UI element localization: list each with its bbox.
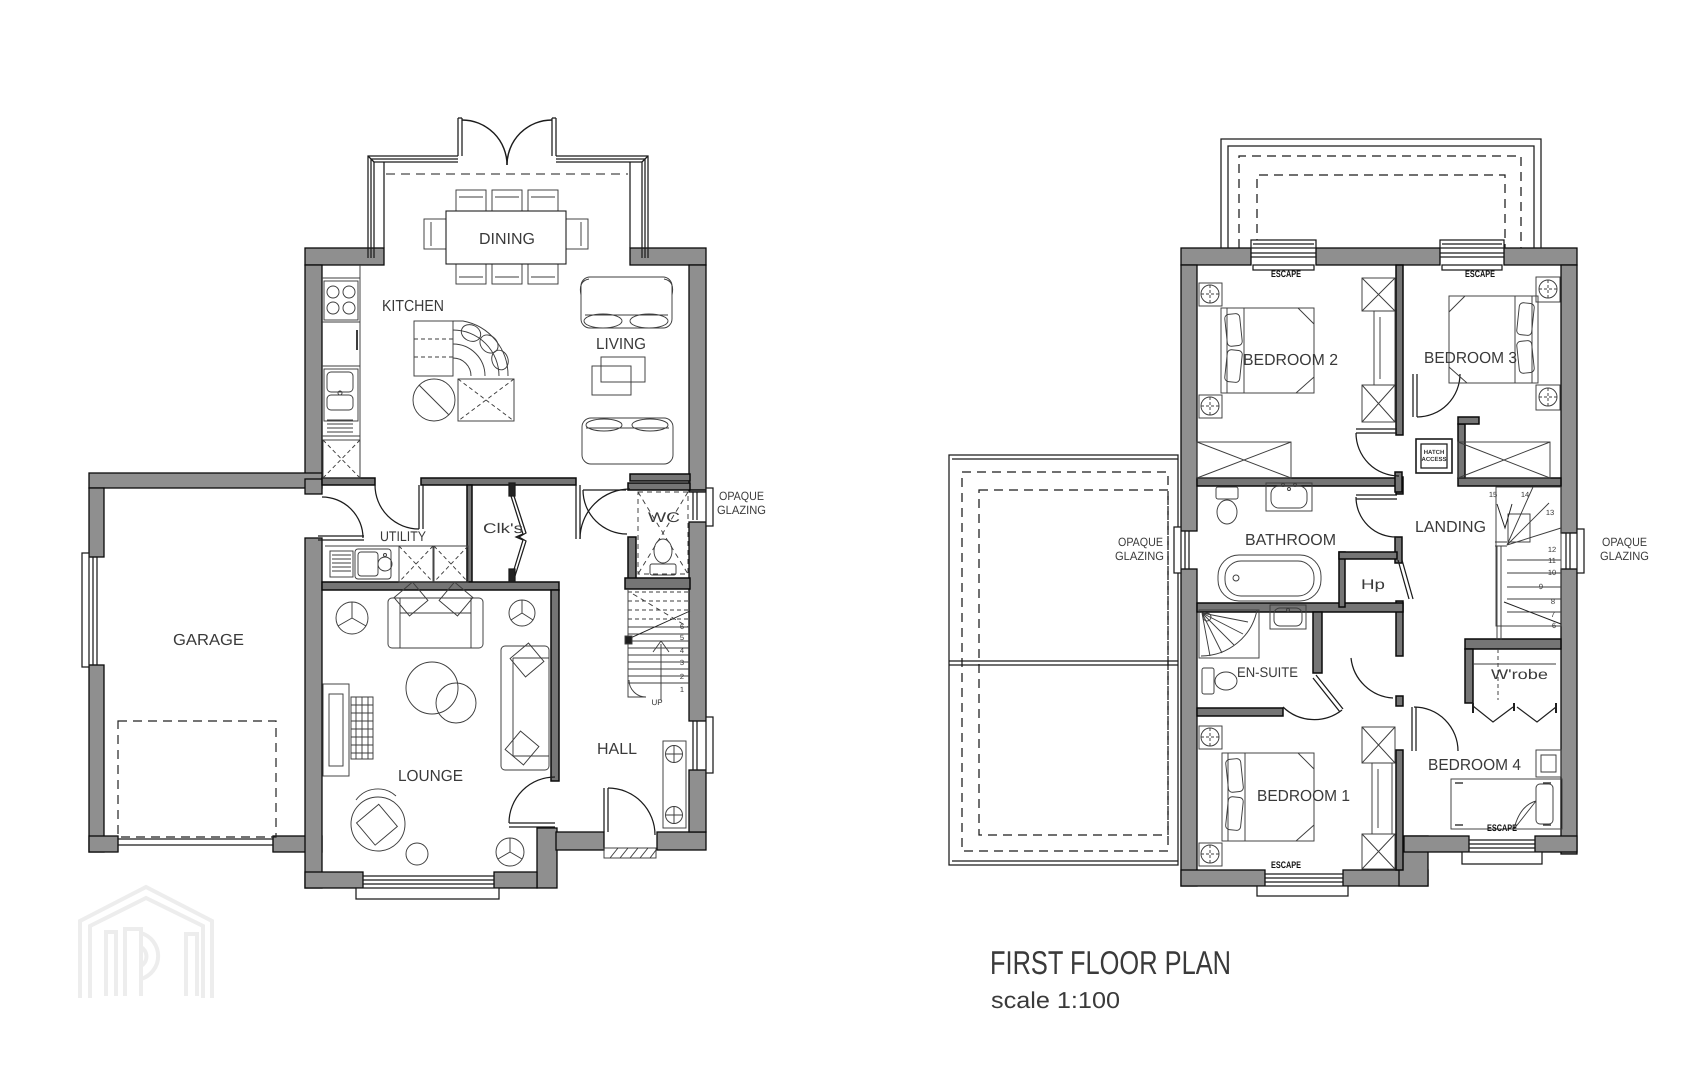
svg-text:KITCHEN: KITCHEN: [382, 298, 444, 315]
svg-text:UP: UP: [651, 698, 662, 707]
svg-text:WC: WC: [648, 509, 680, 525]
svg-text:LOUNGE: LOUNGE: [398, 768, 463, 785]
svg-text:UTILITY: UTILITY: [380, 528, 427, 544]
svg-text:4: 4: [680, 646, 684, 655]
svg-text:7: 7: [1551, 610, 1555, 619]
svg-text:GLAZING: GLAZING: [1115, 549, 1164, 563]
svg-text:GLAZING: GLAZING: [1600, 549, 1649, 563]
svg-text:14: 14: [1521, 490, 1529, 499]
svg-text:ESCAPE: ESCAPE: [1271, 269, 1301, 280]
svg-text:9: 9: [1539, 582, 1543, 591]
svg-text:15: 15: [1489, 490, 1497, 499]
svg-text:13: 13: [1546, 508, 1554, 517]
svg-text:OPAQUE: OPAQUE: [1602, 535, 1647, 549]
svg-text:6: 6: [1552, 621, 1556, 630]
svg-text:1: 1: [680, 685, 684, 694]
svg-text:6: 6: [680, 622, 684, 631]
svg-text:BATHROOM: BATHROOM: [1245, 532, 1336, 549]
svg-text:EN-SUITE: EN-SUITE: [1237, 664, 1298, 680]
svg-text:10: 10: [1548, 568, 1556, 577]
svg-text:LIVING: LIVING: [596, 336, 646, 353]
svg-text:ESCAPE: ESCAPE: [1465, 269, 1495, 280]
svg-text:BEDROOM 3: BEDROOM 3: [1424, 350, 1517, 367]
svg-text:3: 3: [680, 658, 684, 667]
svg-text:2: 2: [680, 672, 684, 681]
svg-text:8: 8: [1551, 597, 1555, 606]
svg-text:ACCESS: ACCESS: [1421, 456, 1446, 463]
svg-text:11: 11: [1548, 556, 1556, 565]
svg-text:12: 12: [1548, 545, 1556, 554]
svg-text:OPAQUE: OPAQUE: [1118, 535, 1163, 549]
svg-text:scale 1:100: scale 1:100: [991, 987, 1120, 1013]
svg-text:HALL: HALL: [597, 741, 637, 758]
svg-text:ESCAPE: ESCAPE: [1487, 823, 1517, 834]
svg-text:BEDROOM 1: BEDROOM 1: [1257, 788, 1350, 805]
svg-text:LANDING: LANDING: [1415, 519, 1486, 536]
svg-text:BEDROOM 4: BEDROOM 4: [1428, 757, 1521, 774]
svg-text:FIRST FLOOR PLAN: FIRST FLOOR PLAN: [990, 944, 1231, 981]
svg-text:BEDROOM 2: BEDROOM 2: [1243, 352, 1338, 369]
svg-text:HATCH: HATCH: [1424, 449, 1445, 456]
svg-text:DINING: DINING: [479, 231, 535, 248]
svg-text:GARAGE: GARAGE: [173, 632, 244, 649]
svg-text:5: 5: [680, 633, 684, 642]
svg-text:ESCAPE: ESCAPE: [1271, 860, 1301, 871]
svg-text:W'robe: W'robe: [1491, 666, 1548, 682]
svg-text:GLAZING: GLAZING: [717, 503, 766, 517]
svg-text:Hp: Hp: [1361, 576, 1385, 592]
svg-text:Clk's: Clk's: [483, 520, 523, 536]
svg-text:OPAQUE: OPAQUE: [719, 489, 764, 503]
